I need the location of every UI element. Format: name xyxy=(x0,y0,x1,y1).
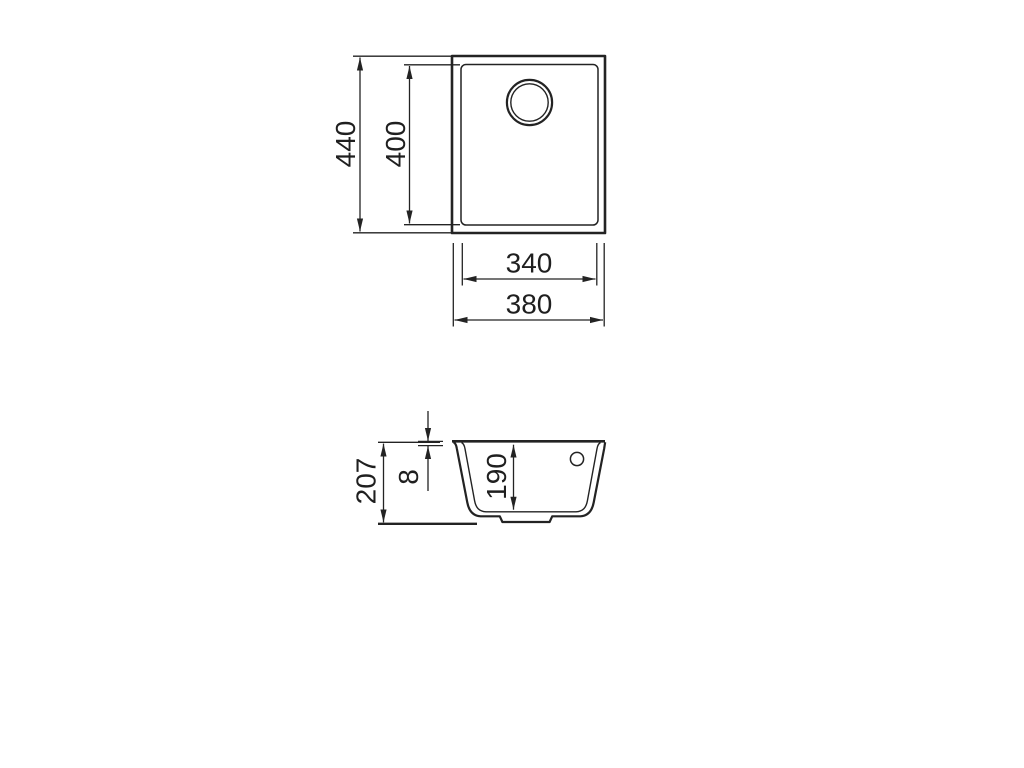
drawing-canvas: 440 400 340 380 xyxy=(0,0,1024,768)
dim-bowl-width: 340 xyxy=(462,243,597,286)
sink-technical-drawing: 440 400 340 380 xyxy=(0,0,1024,768)
dim-label-overall-width: 380 xyxy=(506,289,553,320)
drain-circle-inner xyxy=(511,84,548,121)
dim-label-bowl-depth: 190 xyxy=(481,453,512,500)
section-view-dimensions: 207 8 190 xyxy=(351,411,514,522)
top-view xyxy=(452,56,605,233)
sink-bowl-rect xyxy=(461,65,598,226)
dim-label-bowl-height: 400 xyxy=(380,121,411,168)
sink-outer-rect xyxy=(452,56,605,233)
dim-label-overall-depth: 207 xyxy=(351,458,382,505)
overflow-hole-circle xyxy=(570,452,583,465)
dim-bowl-depth: 190 xyxy=(481,445,514,510)
dim-label-rim-thickness: 8 xyxy=(393,469,424,485)
dim-label-bowl-width: 340 xyxy=(506,248,553,279)
dim-label-overall-height: 440 xyxy=(330,121,361,168)
dim-bowl-height: 400 xyxy=(380,65,460,225)
dim-rim-thickness: 8 xyxy=(393,411,443,491)
top-view-dimensions: 440 400 340 380 xyxy=(330,56,604,326)
drain-circle-outer xyxy=(507,80,552,125)
